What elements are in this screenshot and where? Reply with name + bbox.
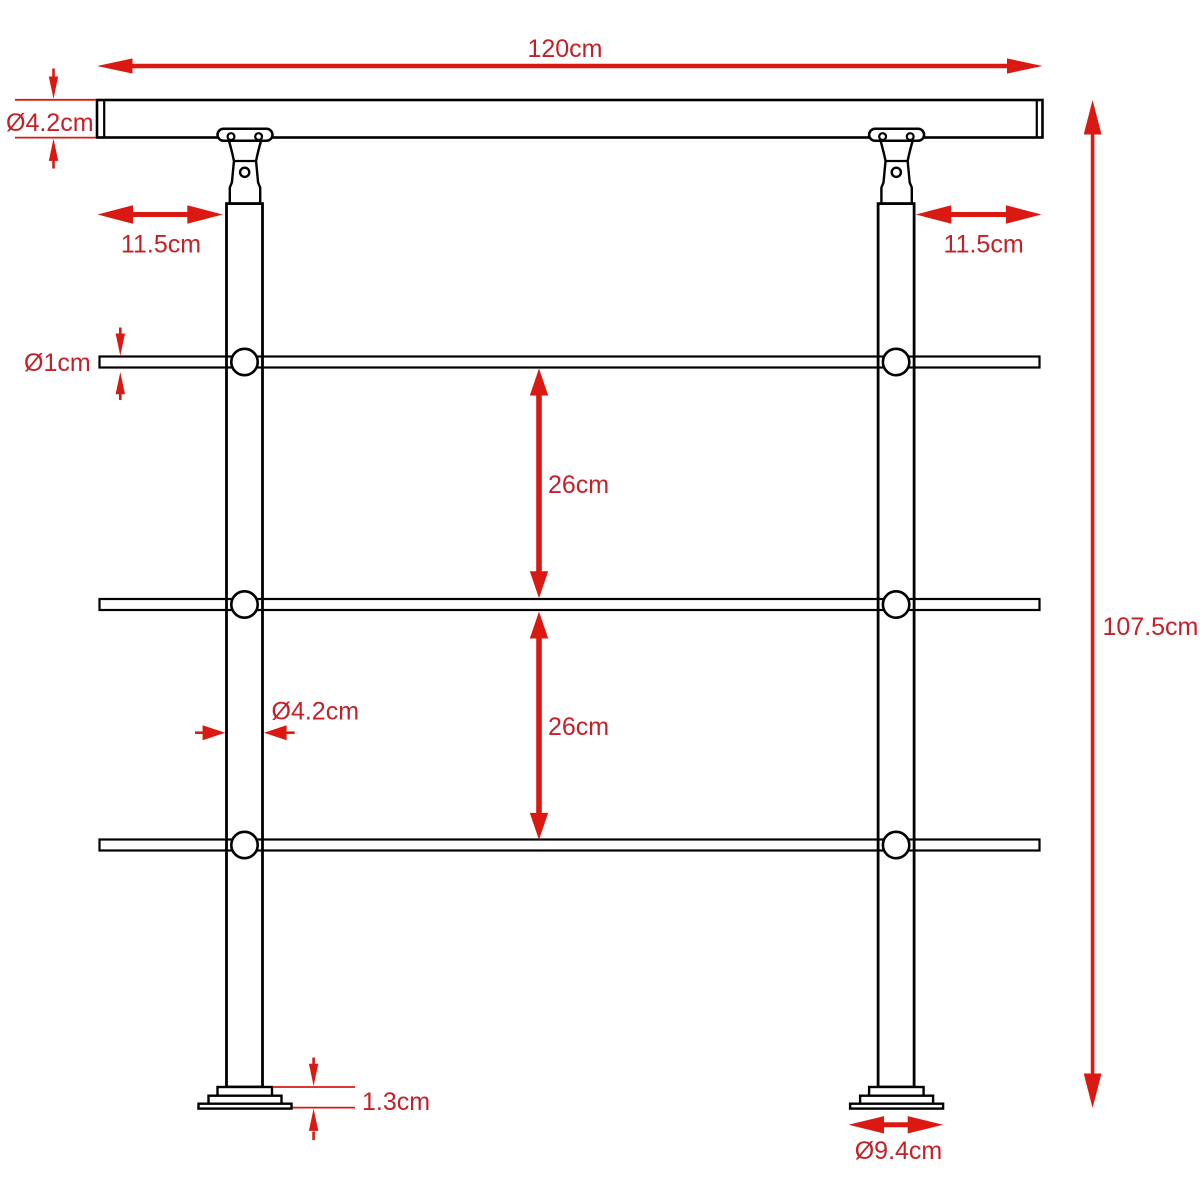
svg-text:107.5cm: 107.5cm [1103,613,1199,641]
svg-text:Ø4.2cm: Ø4.2cm [6,109,94,137]
svg-text:120cm: 120cm [527,35,602,63]
svg-text:1.3cm: 1.3cm [362,1088,430,1116]
svg-text:Ø1cm: Ø1cm [24,349,91,377]
svg-text:26cm: 26cm [548,713,609,741]
svg-text:11.5cm: 11.5cm [121,231,201,259]
svg-text:11.5cm: 11.5cm [944,231,1024,259]
svg-text:Ø9.4cm: Ø9.4cm [855,1137,943,1165]
svg-text:26cm: 26cm [548,471,609,499]
svg-text:Ø4.2cm: Ø4.2cm [272,698,360,726]
